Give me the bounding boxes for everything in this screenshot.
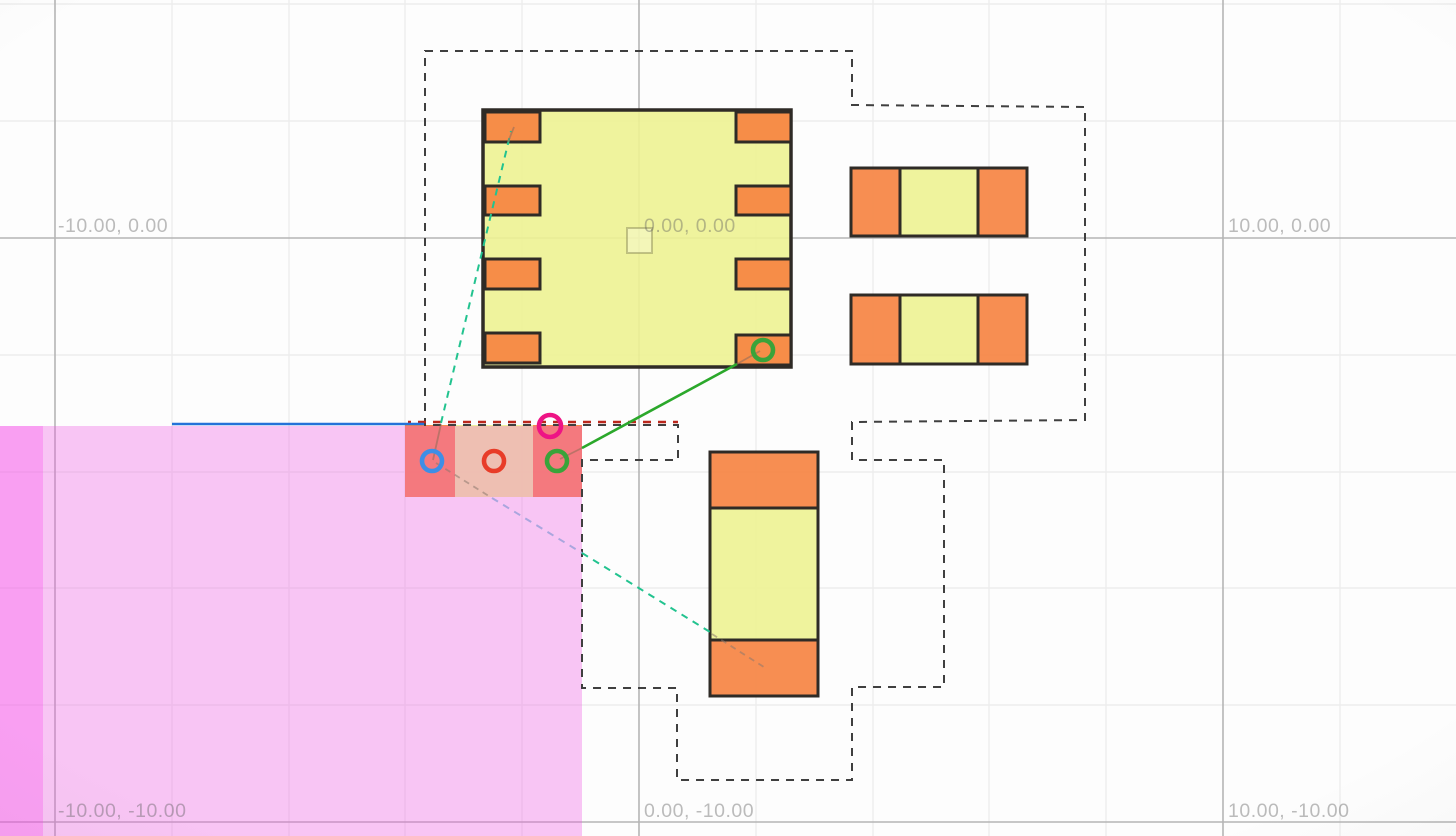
ratsnest-teal-down [582,553,710,632]
coord-label: -10.00, 0.00 [58,215,168,237]
footprint-chip-bottom[interactable] [851,295,1027,364]
coord-label: 10.00, 0.00 [1228,215,1331,237]
footprint-body[interactable] [710,508,818,640]
coord-label: 0.00, 0.00 [644,215,736,237]
pad[interactable] [851,168,900,236]
pad[interactable] [978,168,1027,236]
pad[interactable] [485,333,540,363]
footprint-body[interactable] [900,168,978,236]
coord-label: -10.00, -10.00 [58,800,186,822]
pad[interactable] [485,259,540,289]
zone-fill[interactable] [0,426,582,836]
pad[interactable] [851,295,900,364]
pcb-canvas-svg: -10.00, 0.00 0.00, 0.00 10.00, 0.00 -10.… [0,0,1456,836]
coord-label: 10.00, -10.00 [1228,800,1349,822]
pcb-editor-canvas[interactable]: -10.00, 0.00 0.00, 0.00 10.00, 0.00 -10.… [0,0,1456,836]
keepout-zone[interactable] [0,426,582,836]
pad[interactable] [485,112,540,142]
pad[interactable] [710,640,818,696]
footprint-body[interactable] [900,295,978,364]
coord-label: 0.00, -10.00 [644,800,754,822]
pad[interactable] [736,112,791,142]
pad[interactable] [710,452,818,508]
pad[interactable] [978,295,1027,364]
net-line-green [582,364,737,448]
footprint-chip-top[interactable] [851,168,1027,236]
pad[interactable] [485,186,540,215]
pad[interactable] [736,259,791,289]
zone-edge-strip [0,426,43,836]
pad[interactable] [736,186,791,215]
footprint-vertical[interactable] [710,452,818,696]
